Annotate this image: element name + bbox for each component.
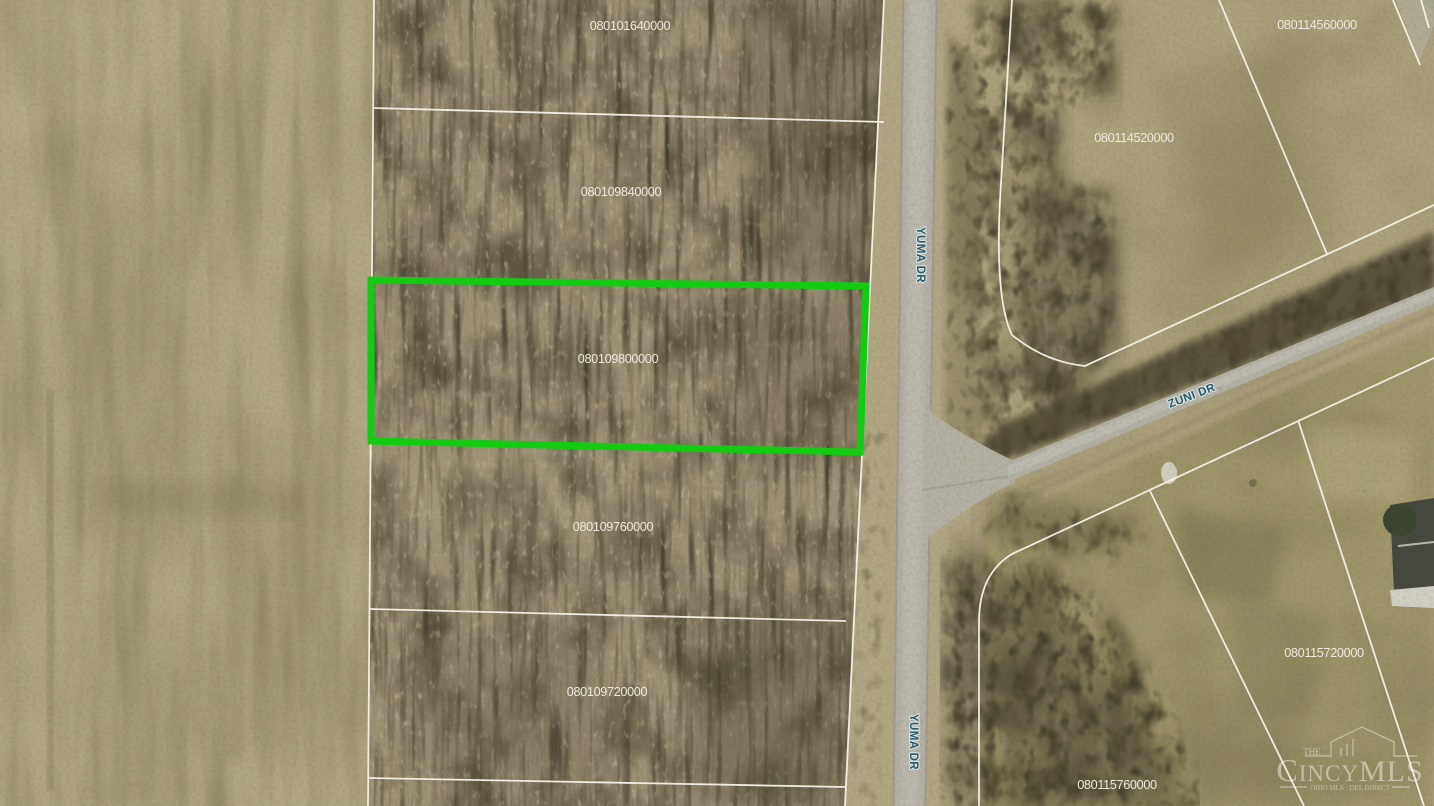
svg-text:THE: THE xyxy=(1303,747,1321,757)
svg-text:080109800000: 080109800000 xyxy=(578,352,659,366)
svg-text:080109840000: 080109840000 xyxy=(581,185,662,199)
svg-text:080109760000: 080109760000 xyxy=(573,520,654,534)
svg-text:080115760000: 080115760000 xyxy=(1077,778,1157,792)
svg-text:080114560000: 080114560000 xyxy=(1277,18,1357,32)
svg-text:YUMA DR: YUMA DR xyxy=(914,227,926,283)
svg-text:OHIO MLS · DEL DIRECT: OHIO MLS · DEL DIRECT xyxy=(1310,784,1391,792)
svg-text:080109720000: 080109720000 xyxy=(567,685,648,699)
svg-text:080115720000: 080115720000 xyxy=(1284,646,1364,660)
svg-text:080101640000: 080101640000 xyxy=(590,19,671,33)
svg-text:080114520000: 080114520000 xyxy=(1094,131,1174,145)
svg-text:YUMA DR: YUMA DR xyxy=(907,714,919,770)
